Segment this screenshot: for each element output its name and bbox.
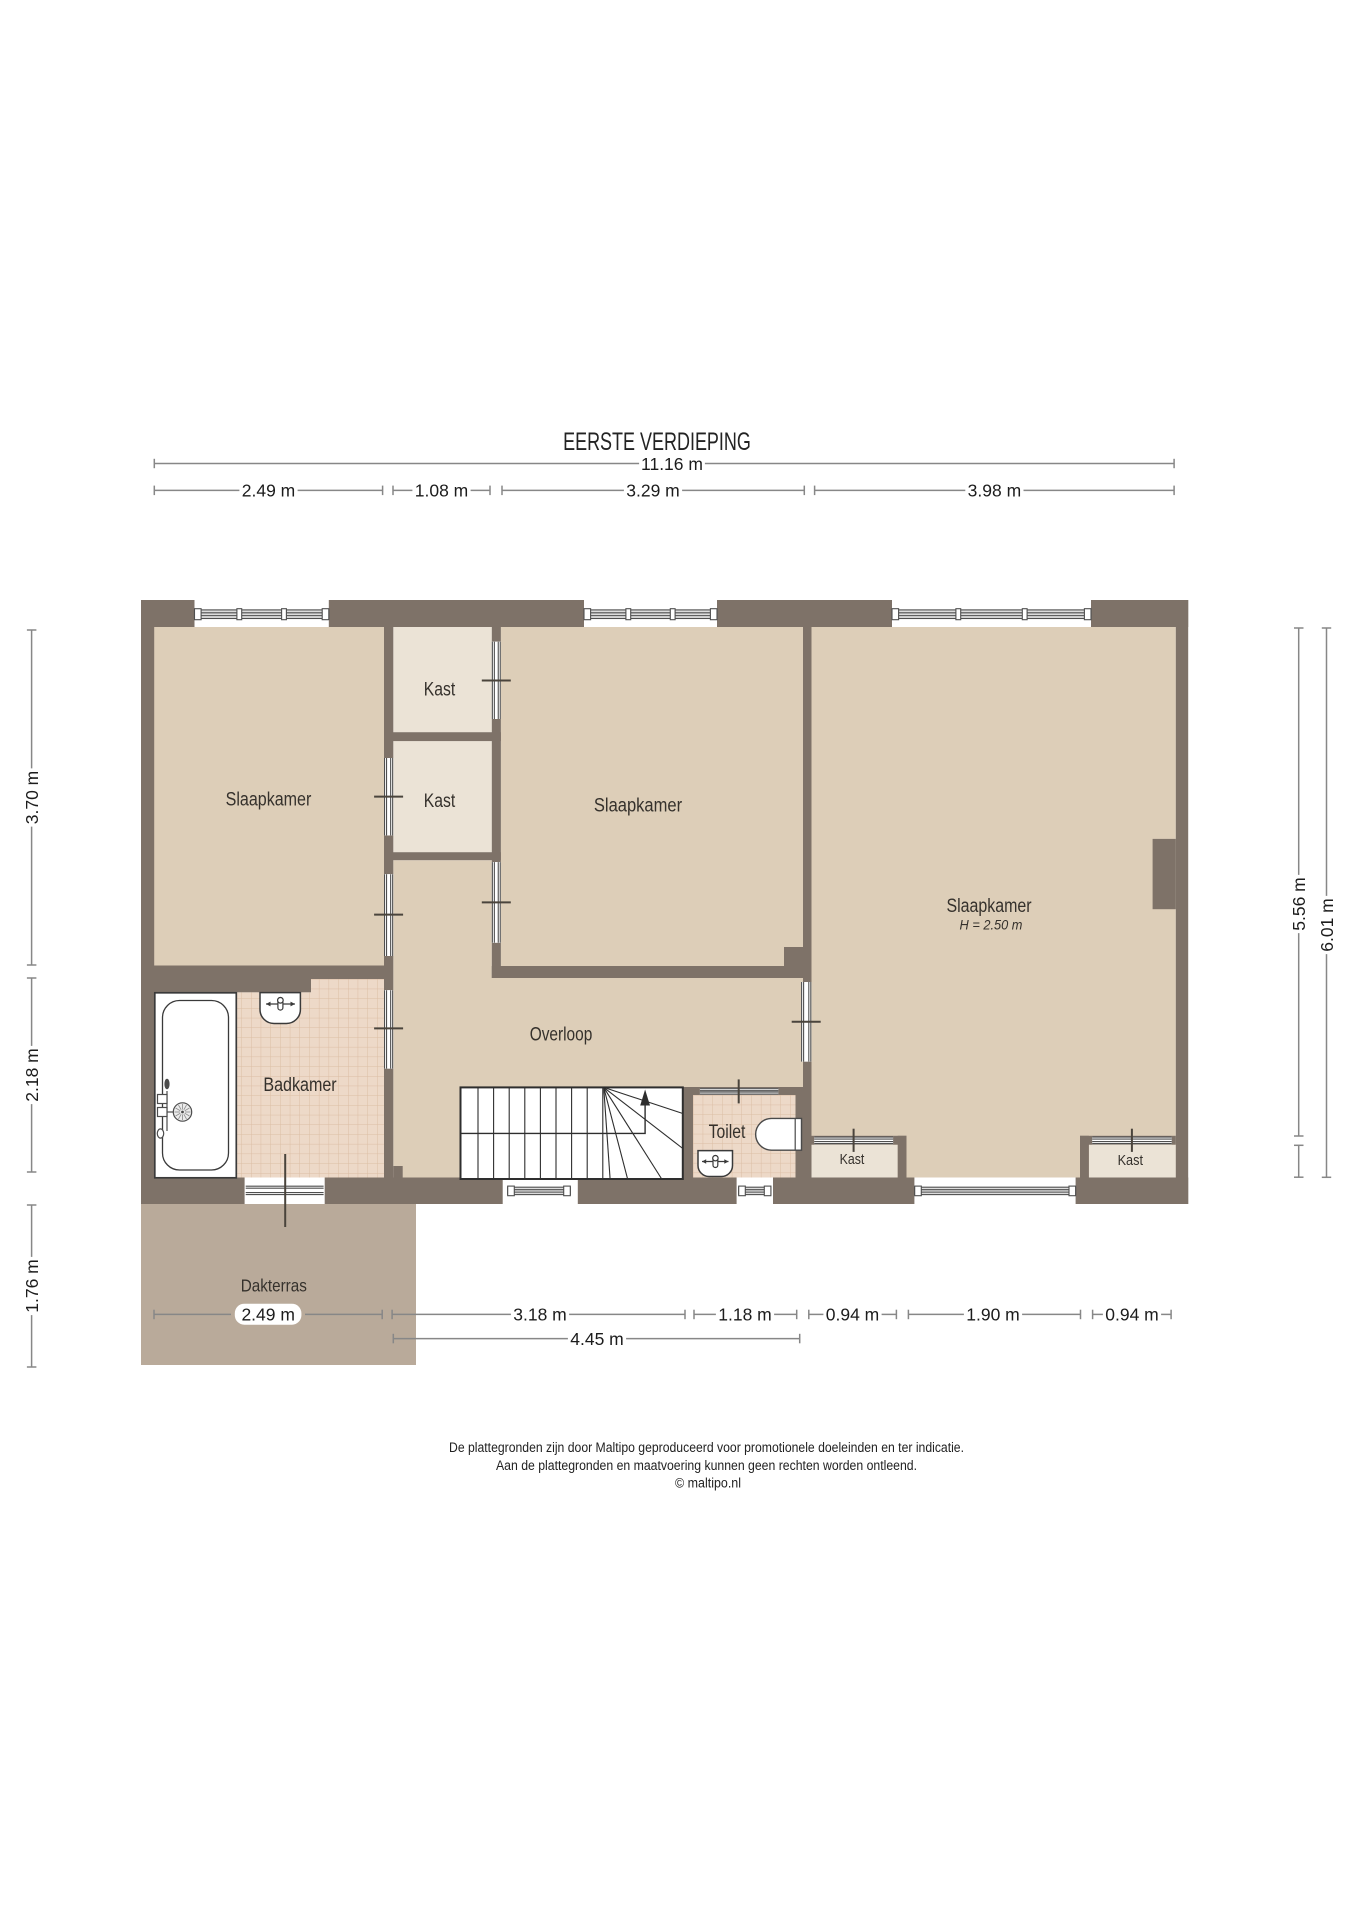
svg-text:1.08 m: 1.08 m	[415, 481, 469, 501]
svg-text:11.16 m: 11.16 m	[641, 454, 703, 474]
svg-text:Slaapkamer: Slaapkamer	[946, 895, 1031, 917]
svg-text:Kast: Kast	[424, 790, 456, 812]
svg-text:Kast: Kast	[840, 1152, 865, 1168]
svg-text:3.98 m: 3.98 m	[968, 481, 1022, 501]
svg-text:1.18 m: 1.18 m	[718, 1305, 772, 1325]
svg-text:De plattegronden zijn door Mal: De plattegronden zijn door Maltipo gepro…	[449, 1440, 964, 1456]
svg-text:Slaapkamer: Slaapkamer	[594, 795, 683, 817]
svg-text:Aan de plattegronden en maatvo: Aan de plattegronden en maatvoering kunn…	[496, 1458, 917, 1474]
svg-text:H = 2.50 m: H = 2.50 m	[960, 917, 1023, 933]
svg-text:2.49 m: 2.49 m	[241, 1305, 295, 1325]
svg-text:Badkamer: Badkamer	[263, 1074, 337, 1096]
svg-text:Overloop: Overloop	[530, 1024, 593, 1046]
svg-text:0.94 m: 0.94 m	[1105, 1305, 1159, 1325]
svg-text:Slaapkamer: Slaapkamer	[226, 789, 312, 811]
svg-text:3.70 m: 3.70 m	[22, 771, 42, 825]
svg-text:Dakterras: Dakterras	[241, 1276, 307, 1296]
svg-text:© maltipo.nl: © maltipo.nl	[675, 1476, 741, 1492]
svg-text:Kast: Kast	[424, 679, 456, 701]
svg-text:4.45 m: 4.45 m	[570, 1329, 624, 1349]
svg-text:1.76 m: 1.76 m	[22, 1259, 42, 1313]
svg-text:1.90 m: 1.90 m	[966, 1305, 1020, 1325]
svg-text:2.49 m: 2.49 m	[242, 481, 296, 501]
svg-text:2.18 m: 2.18 m	[22, 1048, 42, 1102]
svg-text:EERSTE VERDIEPING: EERSTE VERDIEPING	[563, 428, 751, 456]
svg-text:Kast: Kast	[1118, 1153, 1143, 1169]
svg-text:6.01 m: 6.01 m	[1317, 898, 1337, 952]
svg-text:3.29 m: 3.29 m	[626, 481, 680, 501]
svg-text:5.56 m: 5.56 m	[1289, 877, 1309, 931]
svg-text:Toilet: Toilet	[709, 1121, 746, 1143]
svg-text:3.18 m: 3.18 m	[513, 1305, 567, 1325]
svg-text:0.94 m: 0.94 m	[826, 1305, 880, 1325]
